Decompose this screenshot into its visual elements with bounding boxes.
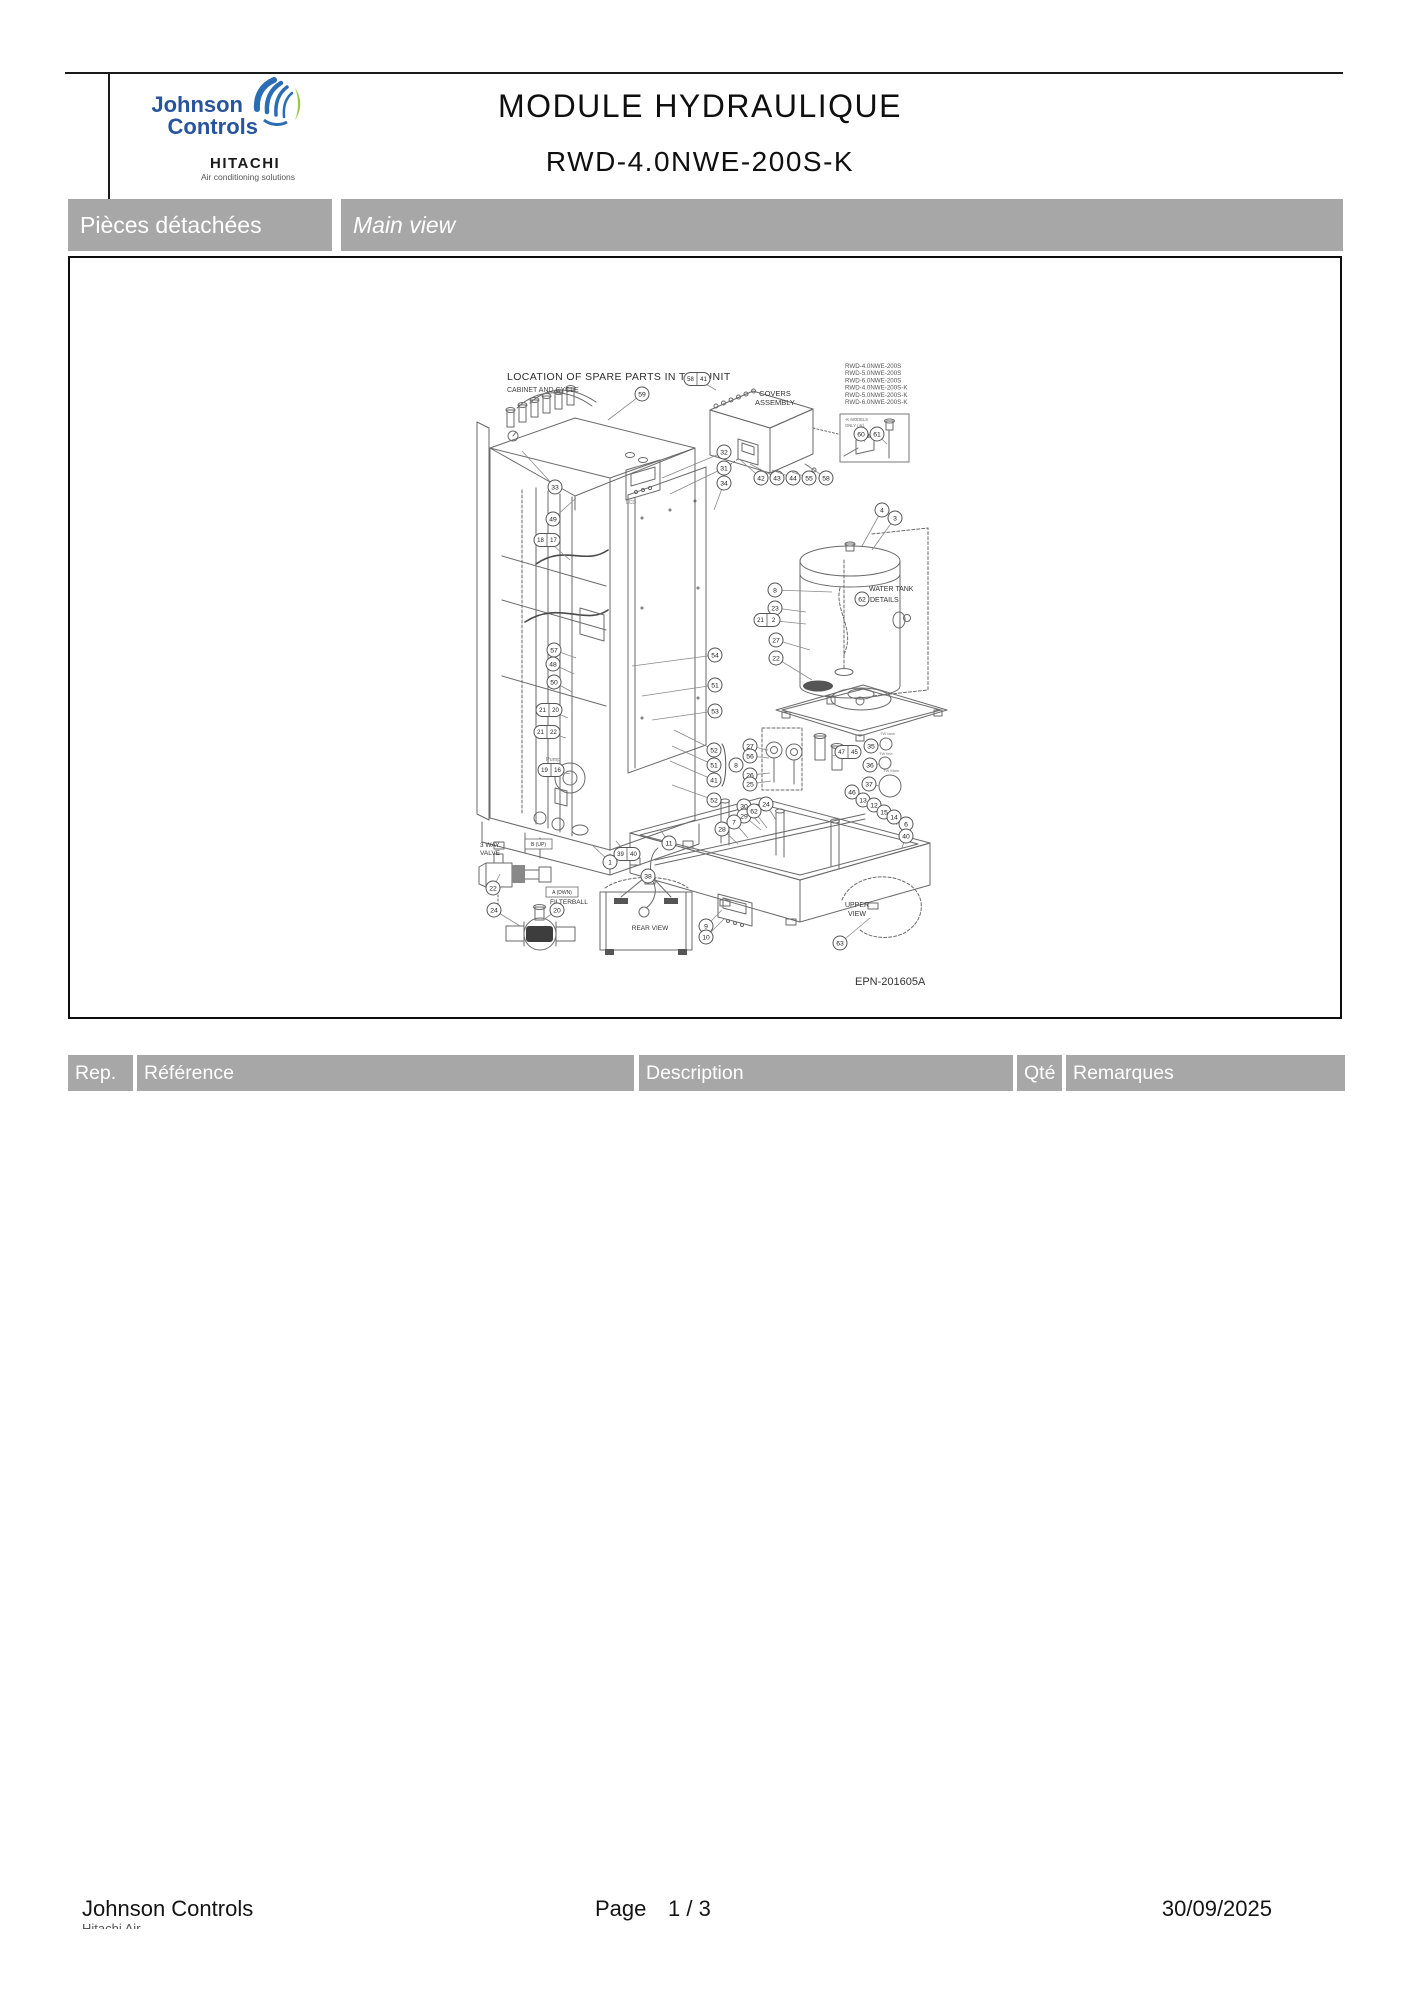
svg-text:24: 24 <box>762 801 770 808</box>
diagram-leader-line <box>632 655 715 666</box>
diagram-leader-line <box>642 685 715 696</box>
svg-text:8: 8 <box>734 762 738 769</box>
svg-text:41: 41 <box>700 377 707 383</box>
svg-text:39: 39 <box>617 852 624 858</box>
diagram-model-item: RWD-4.0NWE-200S <box>845 363 901 370</box>
svg-text:49: 49 <box>549 516 557 523</box>
svg-text:25: 25 <box>746 781 754 788</box>
svg-text:58: 58 <box>687 377 694 383</box>
svg-text:57: 57 <box>550 647 558 654</box>
svg-text:40: 40 <box>902 833 910 840</box>
diagram-label: DETAILS <box>870 597 899 604</box>
diagram-label: WATER TANK <box>869 586 914 593</box>
table-header-description: Description <box>639 1055 1013 1091</box>
diagram-leader-line <box>670 468 724 494</box>
footer-date: 30/09/2025 <box>1150 1896 1272 1922</box>
svg-text:54: 54 <box>711 652 719 659</box>
table-header-qty: Qté <box>1017 1055 1062 1091</box>
svg-text:41: 41 <box>710 777 718 784</box>
svg-text:61: 61 <box>873 431 881 438</box>
hitachi-wordmark: HITACHI <box>210 155 280 172</box>
diagram-tag-label: A (DWN) <box>552 890 572 896</box>
svg-text:16: 16 <box>554 768 561 774</box>
svg-text:44: 44 <box>789 475 797 482</box>
svg-text:22: 22 <box>550 730 557 736</box>
footer-page-label: Page <box>595 1896 646 1922</box>
section-bar-right-label: Main view <box>341 199 1343 251</box>
diagram-model-item: RWD-5.0NWE-200S <box>845 370 901 377</box>
svg-text:40: 40 <box>630 852 637 858</box>
section-bar-right: Main view <box>341 199 1343 251</box>
diagram-drawing-ref: EPN-201605A <box>855 976 926 988</box>
diagram-label: LCD <box>626 500 636 506</box>
svg-text:24: 24 <box>490 907 498 914</box>
svg-text:52: 52 <box>710 797 718 804</box>
svg-text:28: 28 <box>718 826 726 833</box>
diagram-label: TW Main <box>883 768 899 773</box>
diagram-model-item: RWD-6.0NWE-200S-K <box>845 399 908 406</box>
hitachi-tagline: Air conditioning solutions <box>201 172 295 182</box>
svg-text:59: 59 <box>638 391 646 398</box>
svg-text:4: 4 <box>880 507 884 514</box>
diagram-label: VIEW <box>848 911 866 918</box>
svg-text:33: 33 <box>551 484 559 491</box>
svg-text:51: 51 <box>711 682 719 689</box>
page-title: MODULE HYDRAULIQUE <box>400 88 1000 125</box>
svg-text:20: 20 <box>552 708 559 714</box>
svg-text:32: 32 <box>720 449 728 456</box>
footer-page-number: 1 / 3 <box>668 1896 711 1922</box>
diagram-label: Pump <box>546 757 560 763</box>
svg-text:20: 20 <box>553 907 561 914</box>
svg-text:10: 10 <box>702 934 710 941</box>
brand-text-line2: Controls <box>135 116 258 138</box>
svg-text:19: 19 <box>541 768 548 774</box>
diagram-label: ASSEMBLY <box>755 398 795 407</box>
diagram-line-art <box>477 386 947 956</box>
diagram-leader-line <box>775 590 832 592</box>
diagram-label: -K MODELS <box>845 417 868 422</box>
svg-text:52: 52 <box>710 747 718 754</box>
diagram-subheading: CABINET AND CYCLE <box>507 387 579 394</box>
diagram-tag-label: B (UP) <box>531 842 546 848</box>
diagram-label: TW tank <box>880 731 895 736</box>
svg-text:17: 17 <box>550 538 557 544</box>
svg-text:43: 43 <box>773 475 781 482</box>
document-page: Johnson Controls HITACHI Air conditionin… <box>0 0 1410 1993</box>
svg-text:8: 8 <box>773 587 777 594</box>
svg-text:55: 55 <box>805 475 813 482</box>
svg-text:62: 62 <box>750 808 758 815</box>
svg-text:21: 21 <box>757 618 764 624</box>
svg-text:50: 50 <box>550 679 558 686</box>
header-left-border <box>108 73 110 200</box>
svg-text:13: 13 <box>859 797 867 804</box>
diagram-label: COVERS <box>759 389 791 398</box>
svg-text:22: 22 <box>489 885 497 892</box>
diagram-label: 3 WAY <box>480 842 500 849</box>
svg-text:53: 53 <box>711 708 719 715</box>
svg-text:46: 46 <box>848 789 856 796</box>
svg-text:34: 34 <box>720 480 728 487</box>
diagram-label: UPPER <box>845 902 869 909</box>
svg-text:56: 56 <box>746 753 754 760</box>
svg-text:37: 37 <box>865 781 873 788</box>
brand-swirl-icon <box>252 76 302 128</box>
table-header-rep: Rep. <box>68 1055 133 1091</box>
svg-text:42: 42 <box>757 475 765 482</box>
svg-text:3: 3 <box>893 515 897 522</box>
svg-text:31: 31 <box>720 465 728 472</box>
svg-text:48: 48 <box>549 661 557 668</box>
header-top-rule <box>65 72 1343 74</box>
svg-text:7: 7 <box>732 819 736 826</box>
svg-text:22: 22 <box>772 655 780 662</box>
svg-text:9: 9 <box>704 923 708 930</box>
svg-text:45: 45 <box>851 750 858 756</box>
exploded-diagram: LOCATION OF SPARE PARTS IN THE UNITCABIN… <box>70 258 1340 1017</box>
brand-text-line1: Johnson <box>120 94 243 116</box>
section-bar-left-label: Pièces détachées <box>68 199 332 251</box>
svg-text:12: 12 <box>870 802 878 809</box>
footer-company: Johnson Controls <box>82 1896 253 1922</box>
svg-text:60: 60 <box>857 431 865 438</box>
footer-clipped-line: Hitachi Air conditioning <box>82 1921 202 1929</box>
page-subtitle: RWD-4.0NWE-200S-K <box>400 146 1000 178</box>
table-header-reference: Référence <box>137 1055 634 1091</box>
svg-text:6: 6 <box>904 821 908 828</box>
svg-text:11: 11 <box>665 840 672 847</box>
svg-text:27: 27 <box>772 637 780 644</box>
svg-text:18: 18 <box>537 538 544 544</box>
diagram-model-item: RWD-4.0NWE-200S-K <box>845 385 908 392</box>
diagram-label: VALVE <box>480 850 501 857</box>
svg-text:29: 29 <box>740 813 748 820</box>
svg-text:47: 47 <box>838 750 845 756</box>
table-header-remarks: Remarques <box>1066 1055 1345 1091</box>
svg-text:21: 21 <box>539 708 546 714</box>
diagram-model-item: RWD-5.0NWE-200S-K <box>845 392 908 399</box>
svg-text:1: 1 <box>608 859 612 866</box>
svg-text:38: 38 <box>644 873 652 880</box>
svg-text:51: 51 <box>710 762 718 769</box>
svg-text:58: 58 <box>822 475 830 482</box>
diagram-panel: LOCATION OF SPARE PARTS IN THE UNITCABIN… <box>68 256 1342 1019</box>
svg-text:63: 63 <box>836 940 844 947</box>
diagram-label: TW line <box>879 751 893 756</box>
svg-text:62: 62 <box>858 596 866 603</box>
svg-text:14: 14 <box>890 814 898 821</box>
diagram-label: REAR VIEW <box>632 925 669 932</box>
section-bar-left: Pièces détachées <box>68 199 332 251</box>
svg-text:21: 21 <box>537 730 544 736</box>
svg-text:35: 35 <box>867 743 875 750</box>
diagram-model-item: RWD-6.0NWE-200S <box>845 377 901 384</box>
svg-text:23: 23 <box>771 605 779 612</box>
svg-text:36: 36 <box>866 762 874 769</box>
